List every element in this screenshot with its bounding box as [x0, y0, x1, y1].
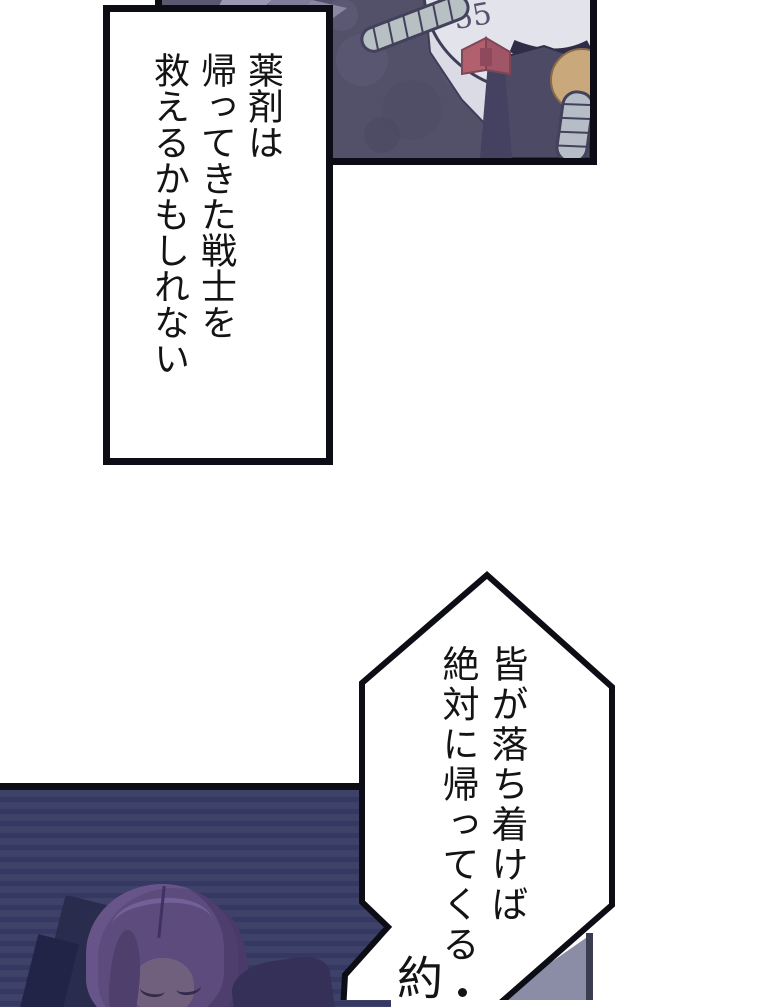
- speech-bubble-rect: 薬剤は 帰ってきた戦士を 救えるかもしれない: [103, 5, 333, 465]
- bubble-hex-trailing-text: 約: [384, 954, 450, 1000]
- bubble-rect-line-3: 救えるかもしれない: [145, 52, 192, 412]
- ellipsis-dot: [458, 988, 467, 997]
- bubble-rect-line-1: 薬剤は: [239, 52, 286, 412]
- bubble-hex-line-1: 皆が落ち着けば: [482, 645, 531, 985]
- bubble-rect-text: 薬剤は 帰ってきた戦士を 救えるかもしれない: [145, 52, 286, 412]
- bubble-hex-line-2: 絶対に帰ってくる: [433, 645, 482, 985]
- bubble-rect-line-2: 帰ってきた戦士を: [192, 52, 239, 412]
- bottom-art-panel: [0, 783, 391, 1007]
- bubble-hex-text: 皆が落ち着けば 絶対に帰ってくる: [433, 645, 531, 985]
